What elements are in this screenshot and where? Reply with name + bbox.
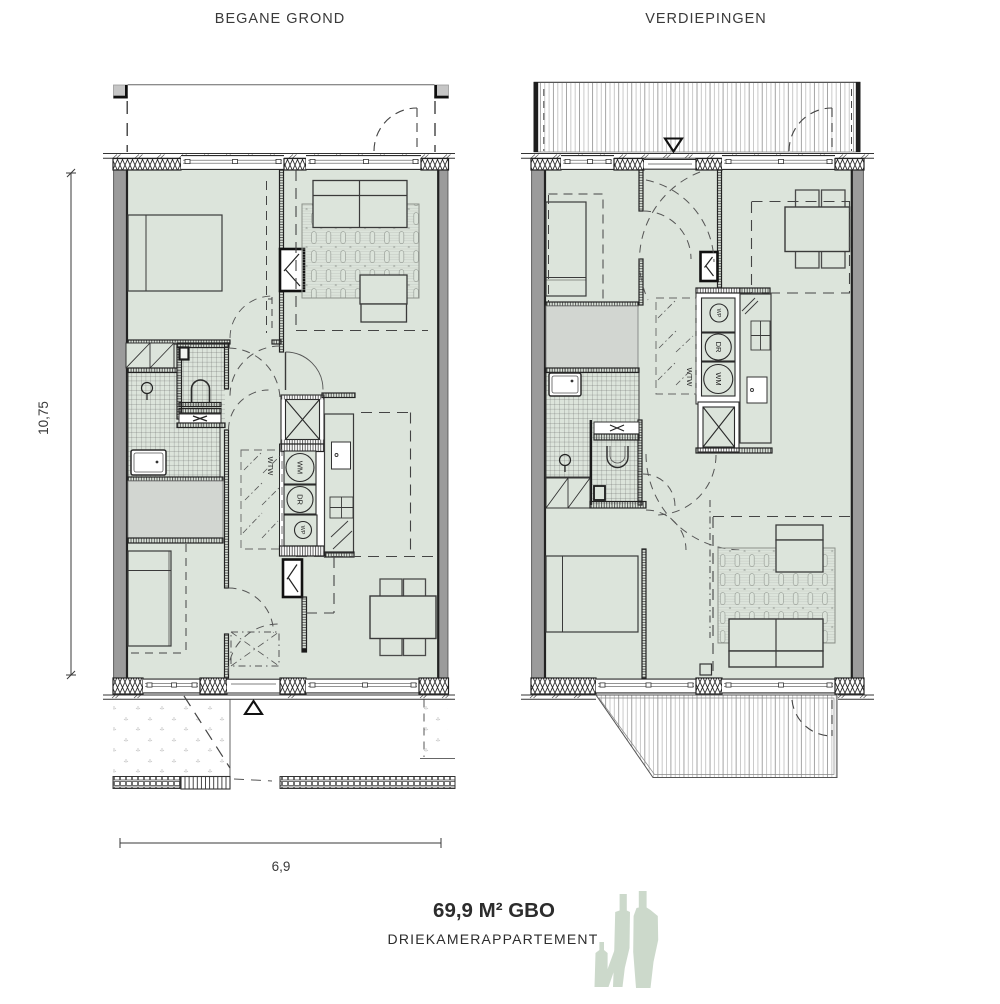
svg-text:VERDIEPINGEN: VERDIEPINGEN xyxy=(645,11,767,27)
svg-text:DRIEKAMERAPPARTEMENT: DRIEKAMERAPPARTEMENT xyxy=(388,931,599,947)
svg-text:WTW: WTW xyxy=(266,457,275,477)
svg-text:WP: WP xyxy=(715,309,721,318)
svg-text:6,9: 6,9 xyxy=(272,859,291,874)
svg-text:10,75: 10,75 xyxy=(36,401,51,435)
svg-text:DR: DR xyxy=(296,494,305,505)
svg-text:BEGANE GROND: BEGANE GROND xyxy=(215,11,345,27)
svg-text:WP: WP xyxy=(299,526,305,535)
svg-text:DR: DR xyxy=(714,342,723,353)
svg-text:WM: WM xyxy=(296,461,305,474)
svg-text:69,9 M² GBO: 69,9 M² GBO xyxy=(433,899,555,922)
svg-text:WTW: WTW xyxy=(685,368,694,388)
svg-text:WM: WM xyxy=(714,372,723,385)
